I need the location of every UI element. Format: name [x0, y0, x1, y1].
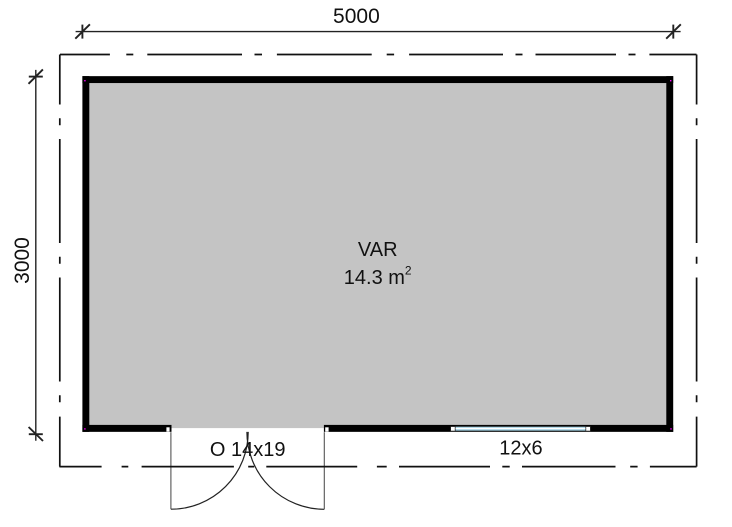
svg-text:O 14x19: O 14x19 [210, 439, 286, 461]
svg-text:14.3 m2: 14.3 m2 [344, 264, 412, 290]
svg-text:VAR: VAR [358, 239, 398, 261]
svg-text:12x6: 12x6 [499, 437, 542, 459]
svg-text:5000: 5000 [333, 5, 380, 28]
svg-text:3000: 3000 [11, 237, 34, 284]
